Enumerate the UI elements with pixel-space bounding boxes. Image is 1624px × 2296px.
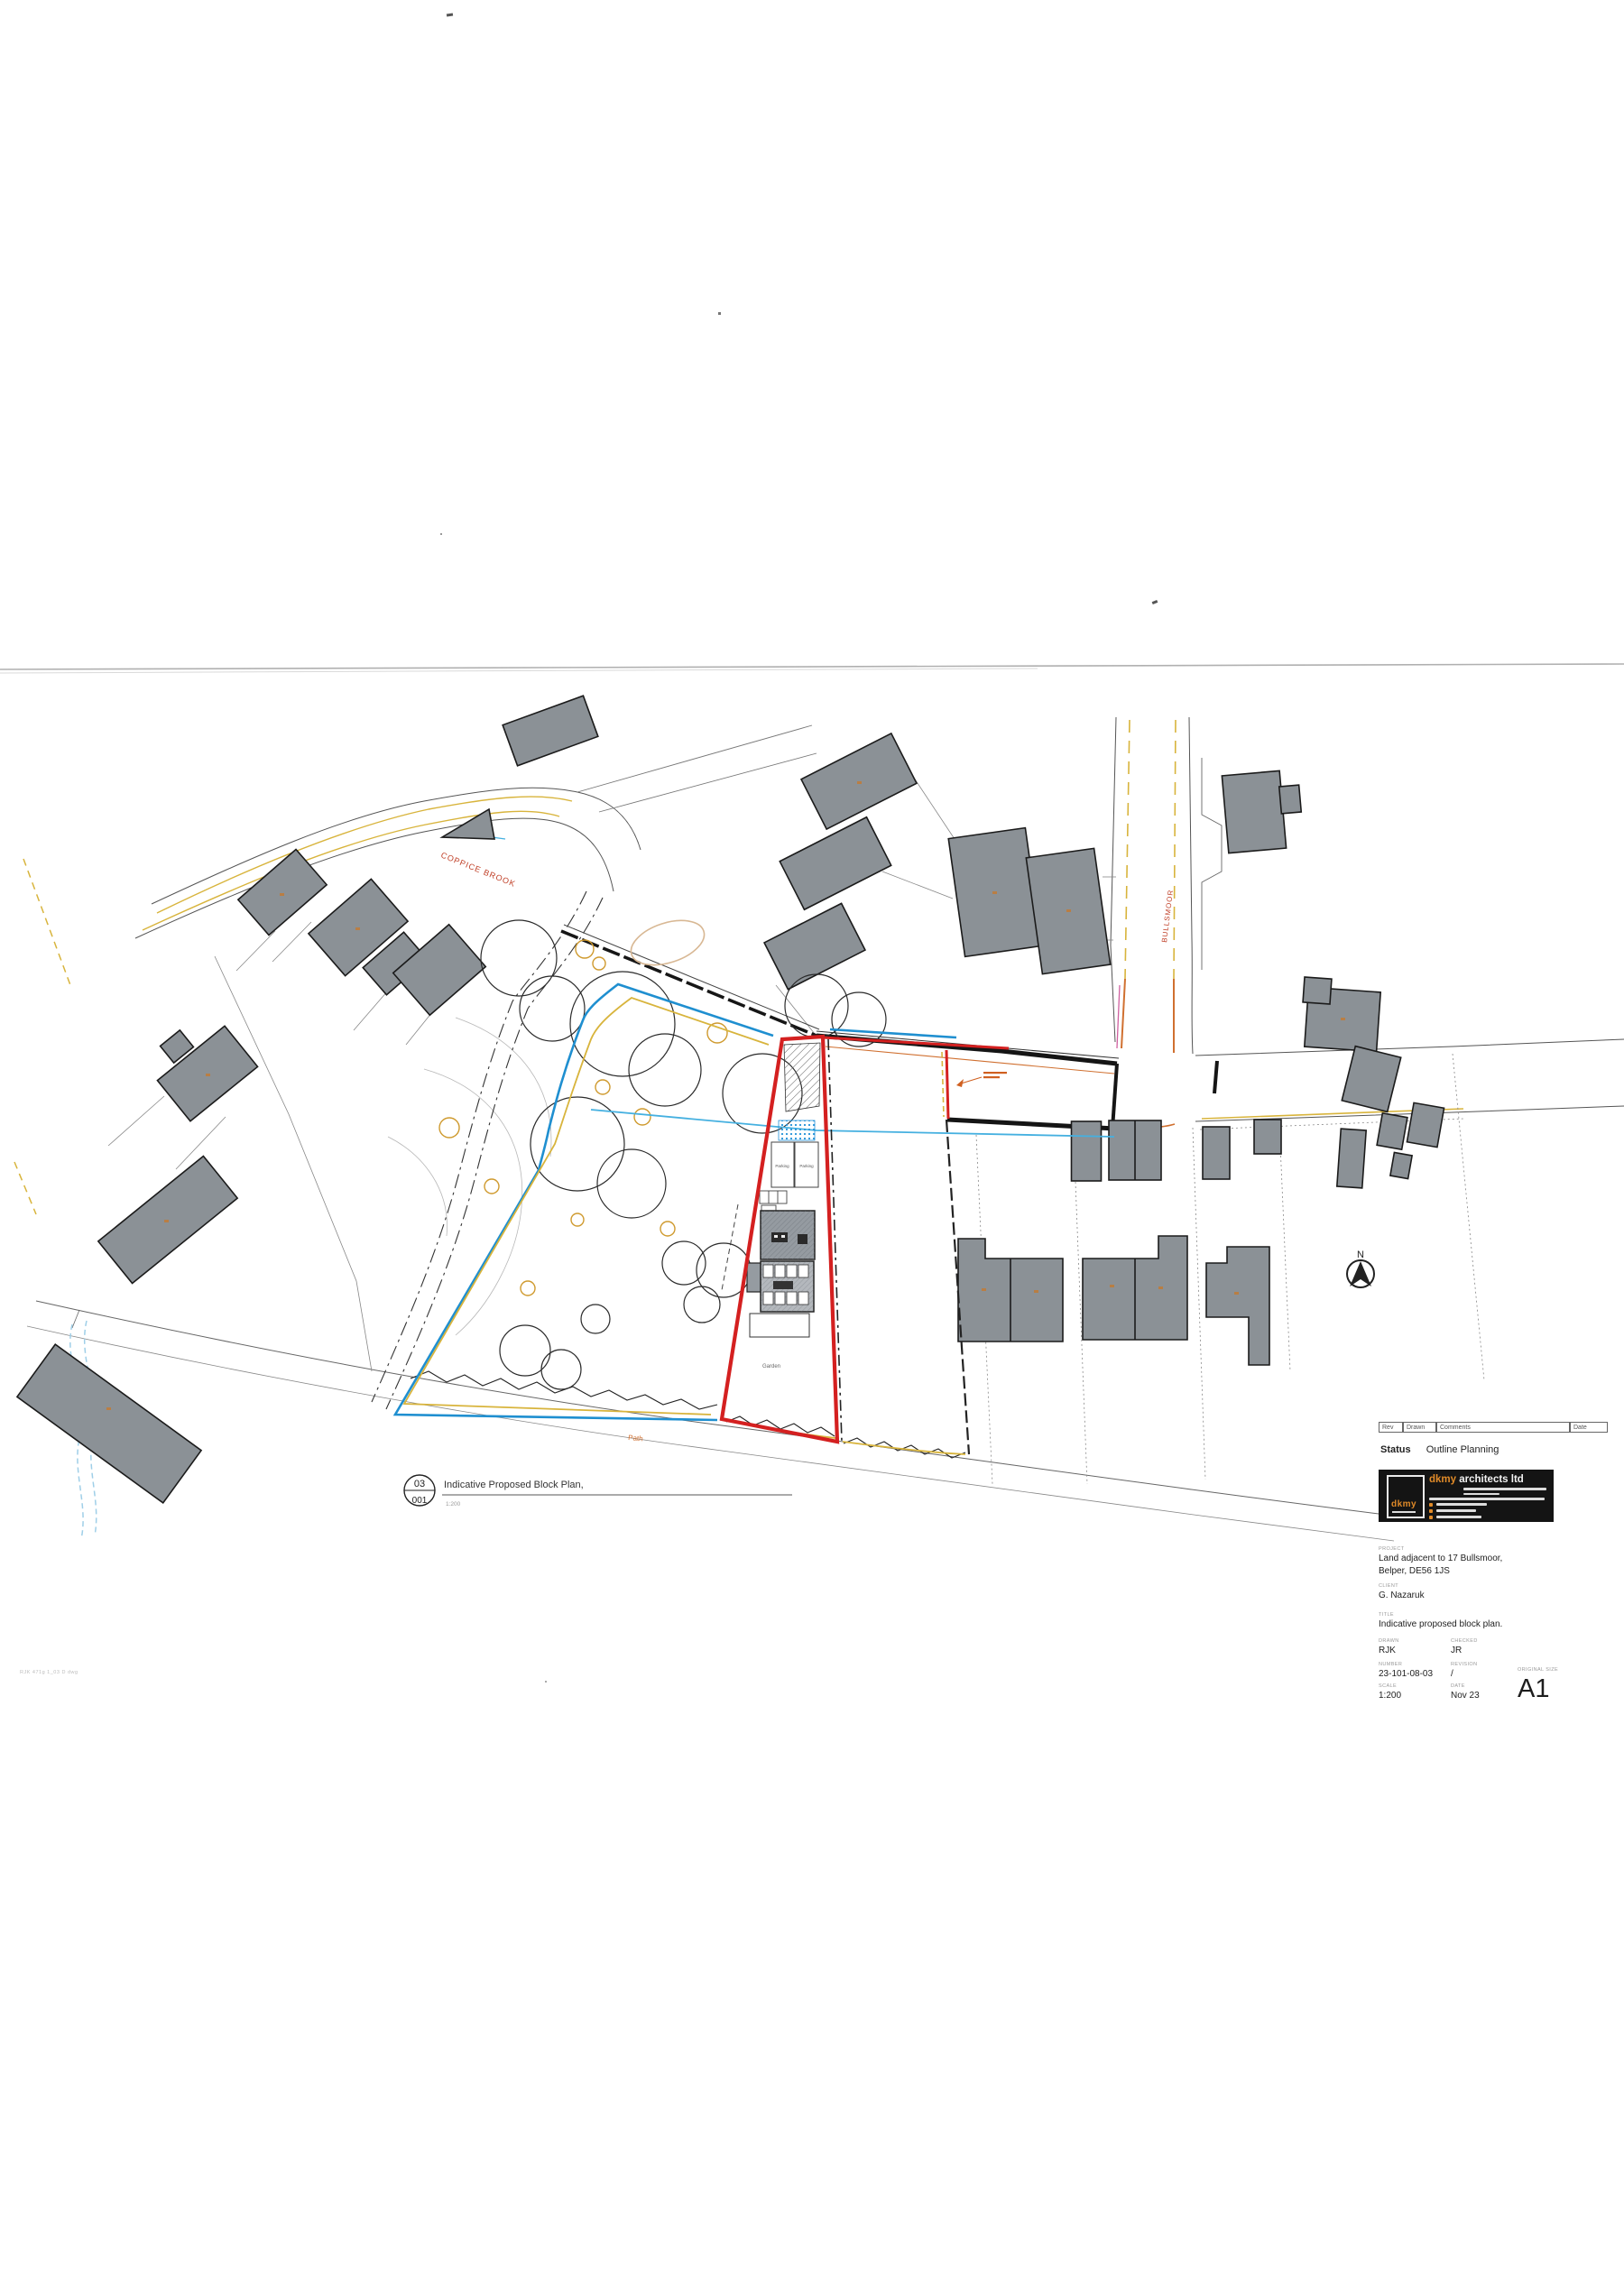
status-row: Status Outline Planning bbox=[1380, 1444, 1499, 1455]
logo-text-bar bbox=[1436, 1503, 1487, 1506]
project-line2: Belper, DE56 1JS bbox=[1379, 1566, 1450, 1576]
window bbox=[798, 1234, 807, 1244]
existing-building bbox=[1206, 1247, 1269, 1365]
logo-text-bar bbox=[1436, 1509, 1476, 1512]
existing-building bbox=[1342, 1047, 1400, 1112]
title-value: Indicative proposed block plan. bbox=[1379, 1619, 1502, 1629]
revision-table: Rev Drawn Comments Date bbox=[1379, 1422, 1608, 1433]
project-label: PROJECT bbox=[1379, 1546, 1404, 1552]
garden-label: Garden bbox=[762, 1364, 780, 1369]
existing-building bbox=[1279, 785, 1302, 814]
revision-table-header-drawn: Drawn bbox=[1403, 1422, 1436, 1433]
logo-contact-icon bbox=[1429, 1503, 1433, 1507]
street-label-coppice-brook: COPPICE BROOK bbox=[439, 851, 517, 889]
drawing-title: Indicative Proposed Block Plan, bbox=[444, 1480, 584, 1490]
path-label: Path bbox=[628, 1434, 643, 1443]
existing-building bbox=[1072, 1121, 1102, 1181]
logo-contact-icon bbox=[1429, 1509, 1433, 1513]
window bbox=[771, 1232, 788, 1242]
existing-buildings bbox=[17, 696, 1444, 1503]
north-arrow: N bbox=[1347, 1249, 1374, 1287]
logo-mark-underline bbox=[1392, 1511, 1416, 1513]
logo-text-bar bbox=[1429, 1498, 1545, 1500]
revision-value: / bbox=[1451, 1669, 1453, 1679]
status-label: Status bbox=[1380, 1444, 1411, 1455]
detail-number: 03 bbox=[414, 1479, 425, 1489]
status-value: Outline Planning bbox=[1426, 1444, 1499, 1455]
logo-mark-icon: dkmy bbox=[1387, 1475, 1425, 1518]
logo-text-bar bbox=[1436, 1516, 1481, 1518]
scale-label: SCALE bbox=[1379, 1683, 1397, 1689]
revision-table-header-rev: Rev bbox=[1379, 1422, 1403, 1433]
hatched-area bbox=[784, 1043, 820, 1111]
logo-company-name: dkmy architects ltd bbox=[1429, 1474, 1548, 1485]
logo-text-bar bbox=[1463, 1488, 1546, 1490]
revision-table-header-date: Date bbox=[1570, 1422, 1608, 1433]
parking-label: Parking bbox=[799, 1164, 814, 1168]
original-size-value: A1 bbox=[1518, 1674, 1549, 1704]
scan-artifact-lines bbox=[0, 664, 1624, 673]
scan-speck bbox=[440, 533, 442, 535]
revision-label: REVISION bbox=[1451, 1662, 1477, 1667]
file-reference: RJK 471g 1_03 D dwg bbox=[20, 1670, 78, 1675]
date-label: DATE bbox=[1451, 1683, 1465, 1689]
scan-speck bbox=[545, 1681, 547, 1683]
project-line1: Land adjacent to 17 Bullsmoor, bbox=[1379, 1554, 1502, 1563]
site-plan-drawing: N COPPICE BROOK BULLSMOOR Path Garden Pa… bbox=[0, 0, 1624, 2296]
existing-building bbox=[238, 849, 327, 935]
company-logo: dkmy dkmy architects ltd bbox=[1379, 1470, 1554, 1522]
scan-speck bbox=[718, 312, 721, 315]
existing-building bbox=[1303, 977, 1332, 1004]
existing-building bbox=[780, 817, 890, 909]
existing-building bbox=[1337, 1129, 1366, 1188]
existing-building bbox=[1222, 770, 1286, 853]
sheet-number: 001 bbox=[412, 1496, 428, 1506]
existing-building bbox=[503, 696, 598, 766]
existing-building bbox=[1254, 1120, 1281, 1154]
parking-label: Parking bbox=[775, 1164, 789, 1168]
title-label: TITLE bbox=[1379, 1612, 1394, 1618]
walls bbox=[561, 925, 1217, 1129]
revision-table-header-comments: Comments bbox=[1436, 1422, 1570, 1433]
existing-building bbox=[764, 903, 865, 989]
checked-label: CHECKED bbox=[1451, 1638, 1478, 1644]
scale-value: 1:200 bbox=[1379, 1691, 1401, 1701]
existing-building bbox=[1407, 1102, 1444, 1147]
number-value: 23-101-08-03 bbox=[1379, 1669, 1433, 1679]
drawn-label: DRAWN bbox=[1379, 1638, 1399, 1644]
client-value: G. Nazaruk bbox=[1379, 1591, 1425, 1600]
proposed-building bbox=[722, 1204, 815, 1337]
existing-building bbox=[1390, 1152, 1412, 1178]
north-label: N bbox=[1357, 1249, 1364, 1260]
drawing-title-label: 03 001 Indicative Proposed Block Plan, 1… bbox=[404, 1475, 792, 1508]
existing-building bbox=[1203, 1127, 1230, 1179]
logo-mark-text: dkmy bbox=[1391, 1499, 1416, 1509]
street-label-bullsmoor: BULLSMOOR bbox=[1160, 889, 1175, 943]
logo-contact-icon bbox=[1429, 1516, 1433, 1519]
boundary-yellow bbox=[404, 998, 965, 1454]
application-boundary-blue bbox=[395, 984, 956, 1420]
original-size-label: ORIGINAL SIZE bbox=[1518, 1667, 1558, 1673]
terrace-outline bbox=[750, 1314, 809, 1337]
blue-dotted-area bbox=[779, 1120, 815, 1140]
existing-building bbox=[17, 1344, 201, 1503]
number-label: NUMBER bbox=[1379, 1662, 1402, 1667]
boundary-annotation bbox=[956, 1072, 1007, 1087]
client-label: CLIENT bbox=[1379, 1583, 1398, 1589]
drawing-scale: 1:200 bbox=[446, 1501, 461, 1508]
date-value: Nov 23 bbox=[1451, 1691, 1480, 1701]
access-yellow-dashed bbox=[942, 1052, 944, 1117]
checked-value: JR bbox=[1451, 1646, 1462, 1655]
drawn-value: RJK bbox=[1379, 1646, 1396, 1655]
logo-text-bar bbox=[1463, 1493, 1499, 1496]
existing-building bbox=[442, 809, 494, 839]
existing-building bbox=[1377, 1113, 1407, 1149]
